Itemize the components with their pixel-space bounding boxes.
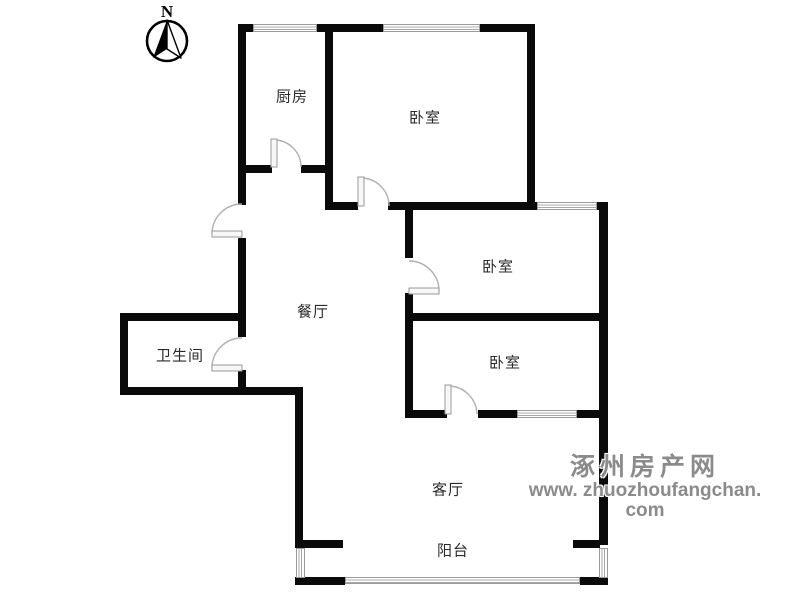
- bathroom-door: [212, 338, 242, 371]
- kitchen-door: [271, 139, 301, 167]
- room-label-bedroom-north: 卧室: [409, 107, 441, 128]
- compass-north-icon: N: [136, 1, 198, 67]
- bedroom-south-door-leaf: [445, 385, 451, 414]
- kitchen-door-leaf: [271, 139, 277, 167]
- room-label-balcony: 阳台: [437, 540, 469, 561]
- room-label-living: 客厅: [432, 479, 464, 500]
- watermark-site-url: www. zhuozhoufangchan. com: [516, 481, 774, 521]
- floor-plan-page: 厨房卧室卧室卧室餐厅卫生间客厅阳台 N 涿州房产网 www. zhuozhouf…: [0, 0, 800, 600]
- entry-door-leaf: [212, 231, 242, 237]
- entry-door-arc: [212, 204, 242, 234]
- room-label-dining: 餐厅: [297, 301, 329, 322]
- bedroom-middle-door: [409, 261, 439, 294]
- bedroom-north-door-leaf: [358, 177, 364, 206]
- compass-n-label: N: [161, 2, 174, 21]
- bedroom-north-door-arc: [361, 178, 389, 206]
- bedroom-middle-door-leaf: [409, 288, 439, 294]
- room-label-bedroom-south: 卧室: [489, 352, 521, 373]
- bedroom-south-door-arc: [448, 386, 477, 414]
- entry-door: [212, 204, 242, 237]
- watermark: 涿州房产网 www. zhuozhoufangchan. com: [516, 454, 774, 521]
- bedroom-north-door: [358, 177, 389, 206]
- kitchen-door-arc: [274, 140, 301, 167]
- room-label-bathroom: 卫生间: [156, 345, 204, 366]
- room-label-bedroom-middle: 卧室: [482, 256, 514, 277]
- bathroom-door-arc: [212, 338, 242, 368]
- room-label-kitchen: 厨房: [276, 86, 308, 107]
- bedroom-south-door: [445, 385, 477, 414]
- watermark-site-name: 涿州房产网: [516, 454, 774, 480]
- bedroom-middle-door-arc: [409, 261, 439, 291]
- bathroom-door-leaf: [212, 365, 242, 371]
